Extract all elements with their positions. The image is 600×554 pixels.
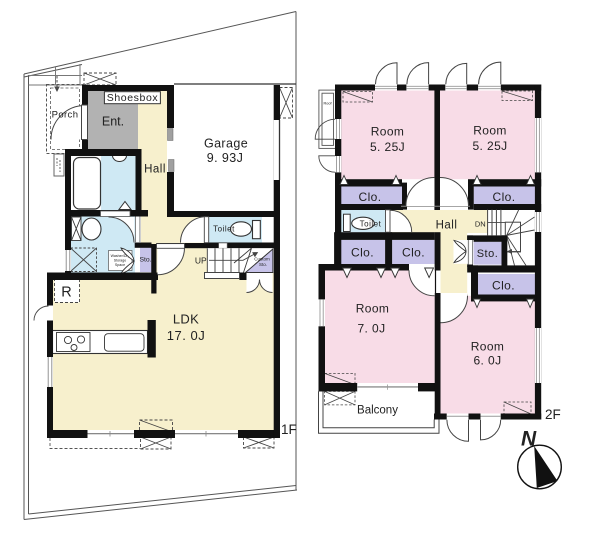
svg-text:1F: 1F bbox=[281, 422, 297, 437]
svg-text:Clo.: Clo. bbox=[492, 279, 515, 293]
svg-text:Ent.: Ent. bbox=[102, 115, 124, 129]
svg-text:Garage: Garage bbox=[204, 137, 248, 151]
svg-text:Sto.: Sto. bbox=[139, 257, 151, 264]
svg-text:6. 0J: 6. 0J bbox=[473, 354, 501, 368]
svg-text:5. 25J: 5. 25J bbox=[472, 139, 507, 153]
svg-text:Room: Room bbox=[356, 302, 390, 316]
svg-text:Porch: Porch bbox=[52, 110, 79, 121]
svg-text:5. 25J: 5. 25J bbox=[370, 140, 405, 154]
svg-text:17. 0J: 17. 0J bbox=[167, 328, 205, 343]
svg-text:Clo.: Clo. bbox=[351, 246, 374, 260]
svg-text:Clo.: Clo. bbox=[493, 190, 516, 204]
svg-text:Hall: Hall bbox=[436, 220, 458, 232]
svg-text:Clo.: Clo. bbox=[359, 190, 382, 204]
svg-text:Sto.: Sto. bbox=[259, 262, 267, 267]
svg-text:Hall: Hall bbox=[144, 164, 166, 176]
svg-text:7. 0J: 7. 0J bbox=[357, 322, 385, 336]
svg-text:DN: DN bbox=[475, 220, 486, 229]
svg-text:Storage: Storage bbox=[114, 259, 127, 263]
svg-text:Clo.: Clo. bbox=[402, 246, 425, 260]
svg-text:Shoesbox: Shoesbox bbox=[107, 92, 159, 104]
svg-text:Toilet: Toilet bbox=[213, 225, 235, 234]
svg-text:Custom: Custom bbox=[254, 257, 270, 262]
svg-text:Room: Room bbox=[473, 124, 507, 138]
svg-text:R: R bbox=[61, 285, 71, 301]
svg-text:Sto.: Sto. bbox=[477, 248, 499, 260]
svg-text:9. 93J: 9. 93J bbox=[207, 151, 243, 165]
svg-text:N: N bbox=[521, 428, 537, 451]
svg-text:Space: Space bbox=[115, 263, 125, 267]
svg-text:Room: Room bbox=[471, 340, 505, 354]
svg-text:Toilet: Toilet bbox=[360, 220, 382, 229]
svg-text:2F: 2F bbox=[545, 407, 561, 422]
svg-text:Room: Room bbox=[371, 125, 405, 139]
svg-text:Roof: Roof bbox=[323, 102, 332, 106]
svg-text:Balcony: Balcony bbox=[357, 405, 398, 417]
svg-text:UP: UP bbox=[195, 255, 207, 265]
svg-text:LDK: LDK bbox=[173, 312, 199, 327]
